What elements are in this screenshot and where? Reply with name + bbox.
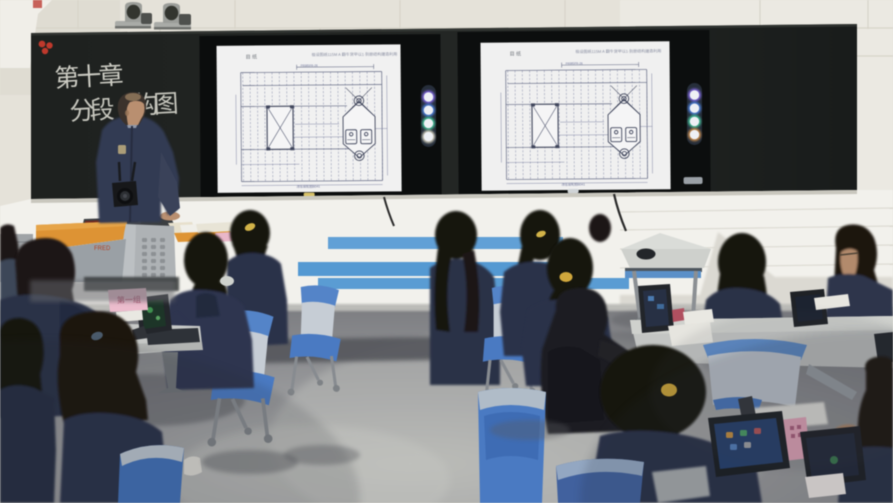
- svg-text:目 纸: 目 纸: [510, 50, 521, 57]
- svg-text:极设图纸115M A 翻牛货甲以1·别册结构建造利用: 极设图纸115M A 翻牛货甲以1·别册结构建造利用: [576, 47, 662, 54]
- svg-text:极设图纸115M A 翻牛货甲以1·别册结构建造利用: 极设图纸115M A 翻牛货甲以1·别册结构建造利用: [312, 50, 398, 57]
- svg-text:分段: 分段: [69, 96, 115, 126]
- svg-text:第十章: 第十章: [54, 61, 123, 93]
- svg-text:目 纸: 目 纸: [246, 54, 257, 61]
- svg-text:FRED: FRED: [94, 246, 111, 252]
